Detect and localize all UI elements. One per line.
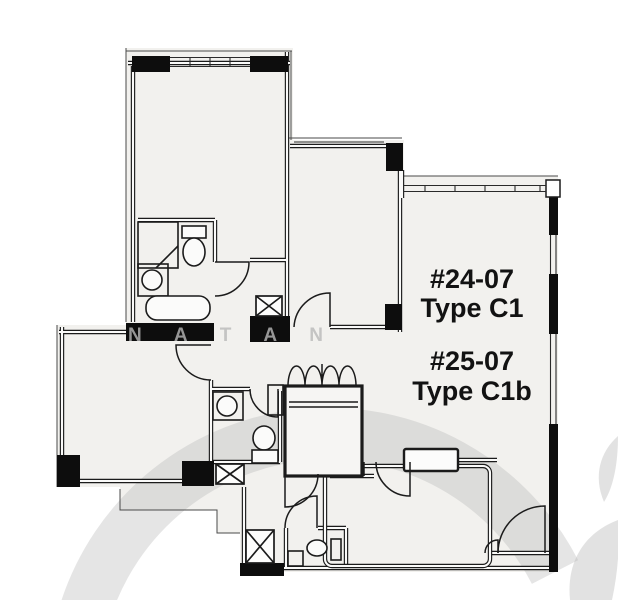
corner-block-living-top-right	[546, 180, 560, 197]
shaft-below-bath2	[216, 464, 244, 484]
column-bed1-top-right	[250, 56, 288, 72]
window-wall-segment-3	[549, 424, 558, 572]
floor-plan-page: N A T A N #24-07 Type C1 #25-07 Type C1b	[0, 0, 618, 600]
ac-ledge-shaft	[256, 296, 282, 316]
unit-24-07-number-label: #24-07	[430, 264, 514, 294]
unit-24-07-type-label: Type C1	[420, 293, 523, 323]
wc-toilet	[307, 540, 327, 556]
unit-25-07-number-label: #25-07	[430, 346, 514, 376]
bathtub	[146, 296, 210, 320]
window-wall-segment-2	[549, 274, 558, 334]
watermark-letters: N A T A N	[128, 325, 323, 346]
floor-plan: N A T A N #24-07 Type C1 #25-07 Type C1b	[0, 0, 618, 600]
toilet-common	[252, 426, 278, 463]
toilet-master	[182, 226, 206, 266]
column-bed3-bottom-left	[57, 455, 80, 487]
column-bed3-bottom-right	[182, 461, 214, 486]
serving-hatch	[404, 449, 458, 471]
unit-25-07-type-label: Type C1b	[412, 376, 532, 406]
shelter-box	[285, 386, 362, 476]
column-bed2-top-right	[386, 143, 403, 171]
wall-black-kitchen-bottom	[240, 563, 284, 576]
window-wall-segment-1	[549, 194, 558, 235]
column-bed1-top-left	[132, 56, 170, 72]
column-bed2-bottom-right	[385, 304, 402, 330]
kitchen-duct-shaft	[246, 530, 274, 563]
